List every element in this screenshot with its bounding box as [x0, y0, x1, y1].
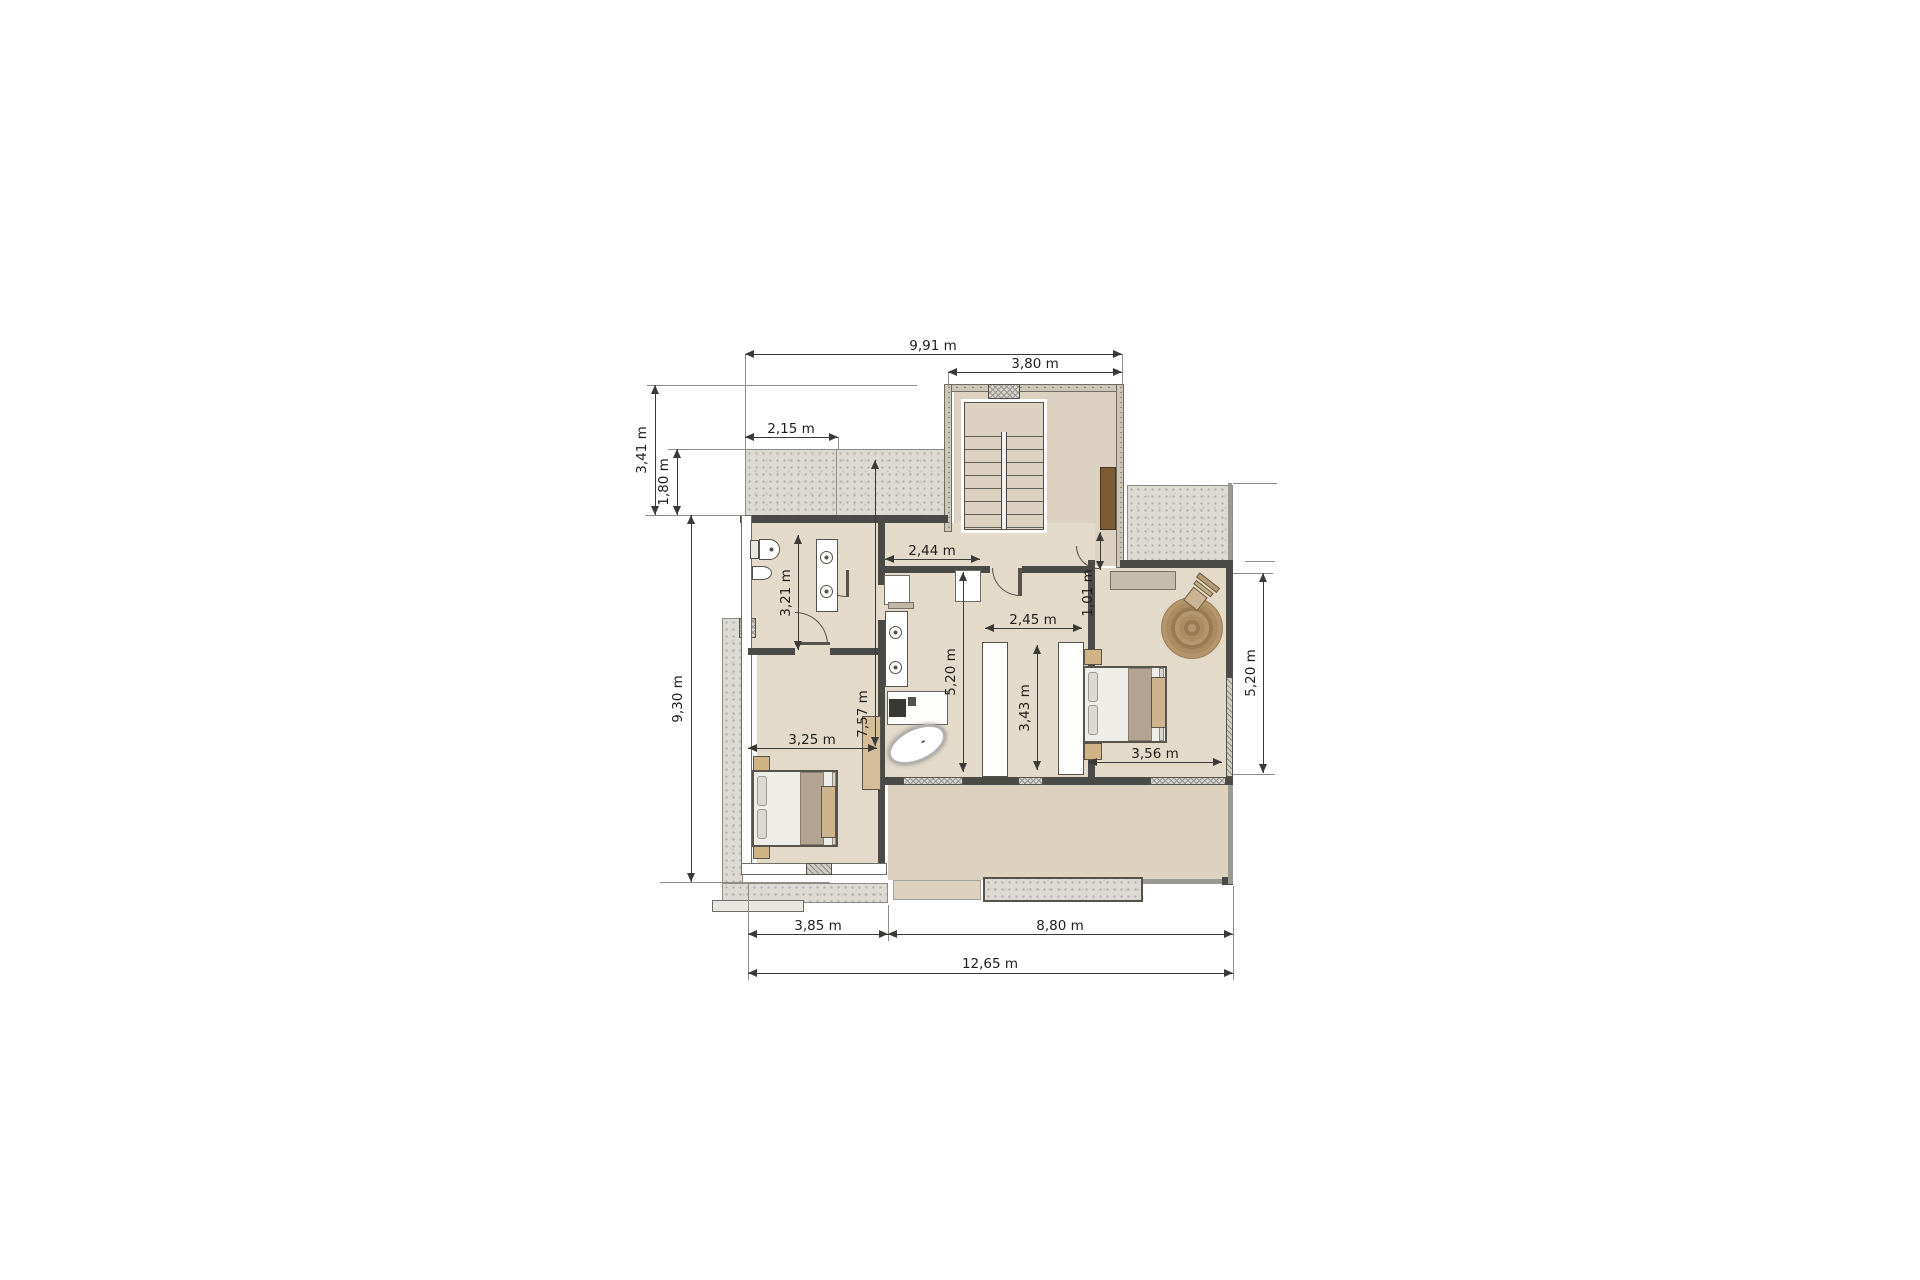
ext-line	[645, 515, 745, 516]
wall-bedroom2-right-hatched	[1226, 677, 1233, 777]
wall-bedroom2-right	[1226, 560, 1233, 677]
wall-bedroom1-bottom-hatched	[806, 863, 832, 875]
window-south-c	[1150, 777, 1226, 785]
wall-hall-south-b	[1022, 566, 1088, 573]
toilet	[750, 540, 759, 559]
bed-right-blanket	[1128, 668, 1152, 741]
terrace-divider-line	[836, 449, 837, 516]
wardrobe-column-right	[1058, 642, 1084, 775]
balcony-edge-ledge	[712, 900, 804, 912]
toilet-bowl	[759, 539, 780, 560]
sink-center-2	[889, 661, 902, 674]
ext-line	[660, 882, 830, 883]
sink-left-1	[820, 551, 833, 564]
bed-left-pillow-2	[757, 809, 767, 839]
sink-center-1	[889, 626, 902, 639]
vanity-accessory	[908, 697, 916, 706]
balcony-gravel-strip	[722, 618, 743, 884]
nightstand-left-1	[753, 756, 770, 771]
sink-left-2	[820, 585, 833, 598]
bench-left	[821, 786, 836, 838]
window-south-b	[1018, 777, 1043, 785]
shelf-center	[888, 602, 914, 609]
wall-bedroom2-top	[1120, 560, 1233, 568]
terrace-bottom-wall	[1143, 879, 1233, 884]
ext-line	[838, 437, 839, 450]
ext-line	[1233, 774, 1275, 775]
wall-bath1-bottom-b	[830, 648, 878, 655]
ext-line	[1233, 573, 1273, 574]
washbasin-center-counter	[885, 611, 908, 687]
window-south-a	[903, 777, 963, 785]
dresser	[1110, 571, 1176, 590]
ext-line	[1233, 483, 1277, 484]
bed-right-pillow-2	[1088, 705, 1098, 735]
bidet	[752, 566, 772, 580]
washbasin-left-counter	[816, 539, 838, 612]
floor-plan-canvas: 9,91 m 3,80 m 2,15 m 3,41 m 1,80 m 9,30 …	[0, 0, 1920, 1280]
bench-right	[1151, 677, 1166, 728]
bed-left-pillow-1	[757, 776, 767, 806]
vanity-stool	[889, 699, 906, 717]
stair-rail	[1001, 432, 1007, 529]
stairwell-wall-left	[944, 384, 952, 532]
bed-right-pillow-1	[1088, 672, 1098, 702]
terrace-gravel-inset	[983, 877, 1143, 902]
wall-top-left	[740, 515, 948, 523]
terrace-upper-left	[745, 449, 948, 516]
wall-bath1-bottom-a	[748, 648, 795, 655]
ext-line	[1122, 354, 1123, 386]
wardrobe-column-left	[982, 642, 1008, 777]
door-bath1-leaf	[846, 570, 849, 597]
terrace-upper-right	[1127, 485, 1233, 561]
wall-left-exterior	[741, 515, 752, 873]
terrace-right-wall	[1228, 777, 1233, 884]
wall-stub-shower	[884, 575, 910, 605]
ext-line	[647, 385, 917, 386]
stairwell-wall-right	[1116, 384, 1124, 568]
terrace-step-block	[893, 880, 981, 900]
stairwell-window	[988, 384, 1020, 399]
ext-line	[1233, 886, 1234, 980]
stairwell-wall-top	[944, 384, 1122, 392]
nightstand-right-1	[1084, 649, 1102, 665]
ext-line	[1245, 561, 1275, 562]
terrace-lower-floor	[888, 785, 1233, 880]
upper-right-boundary-wall	[1228, 483, 1232, 563]
stairwell-door	[1100, 467, 1116, 530]
